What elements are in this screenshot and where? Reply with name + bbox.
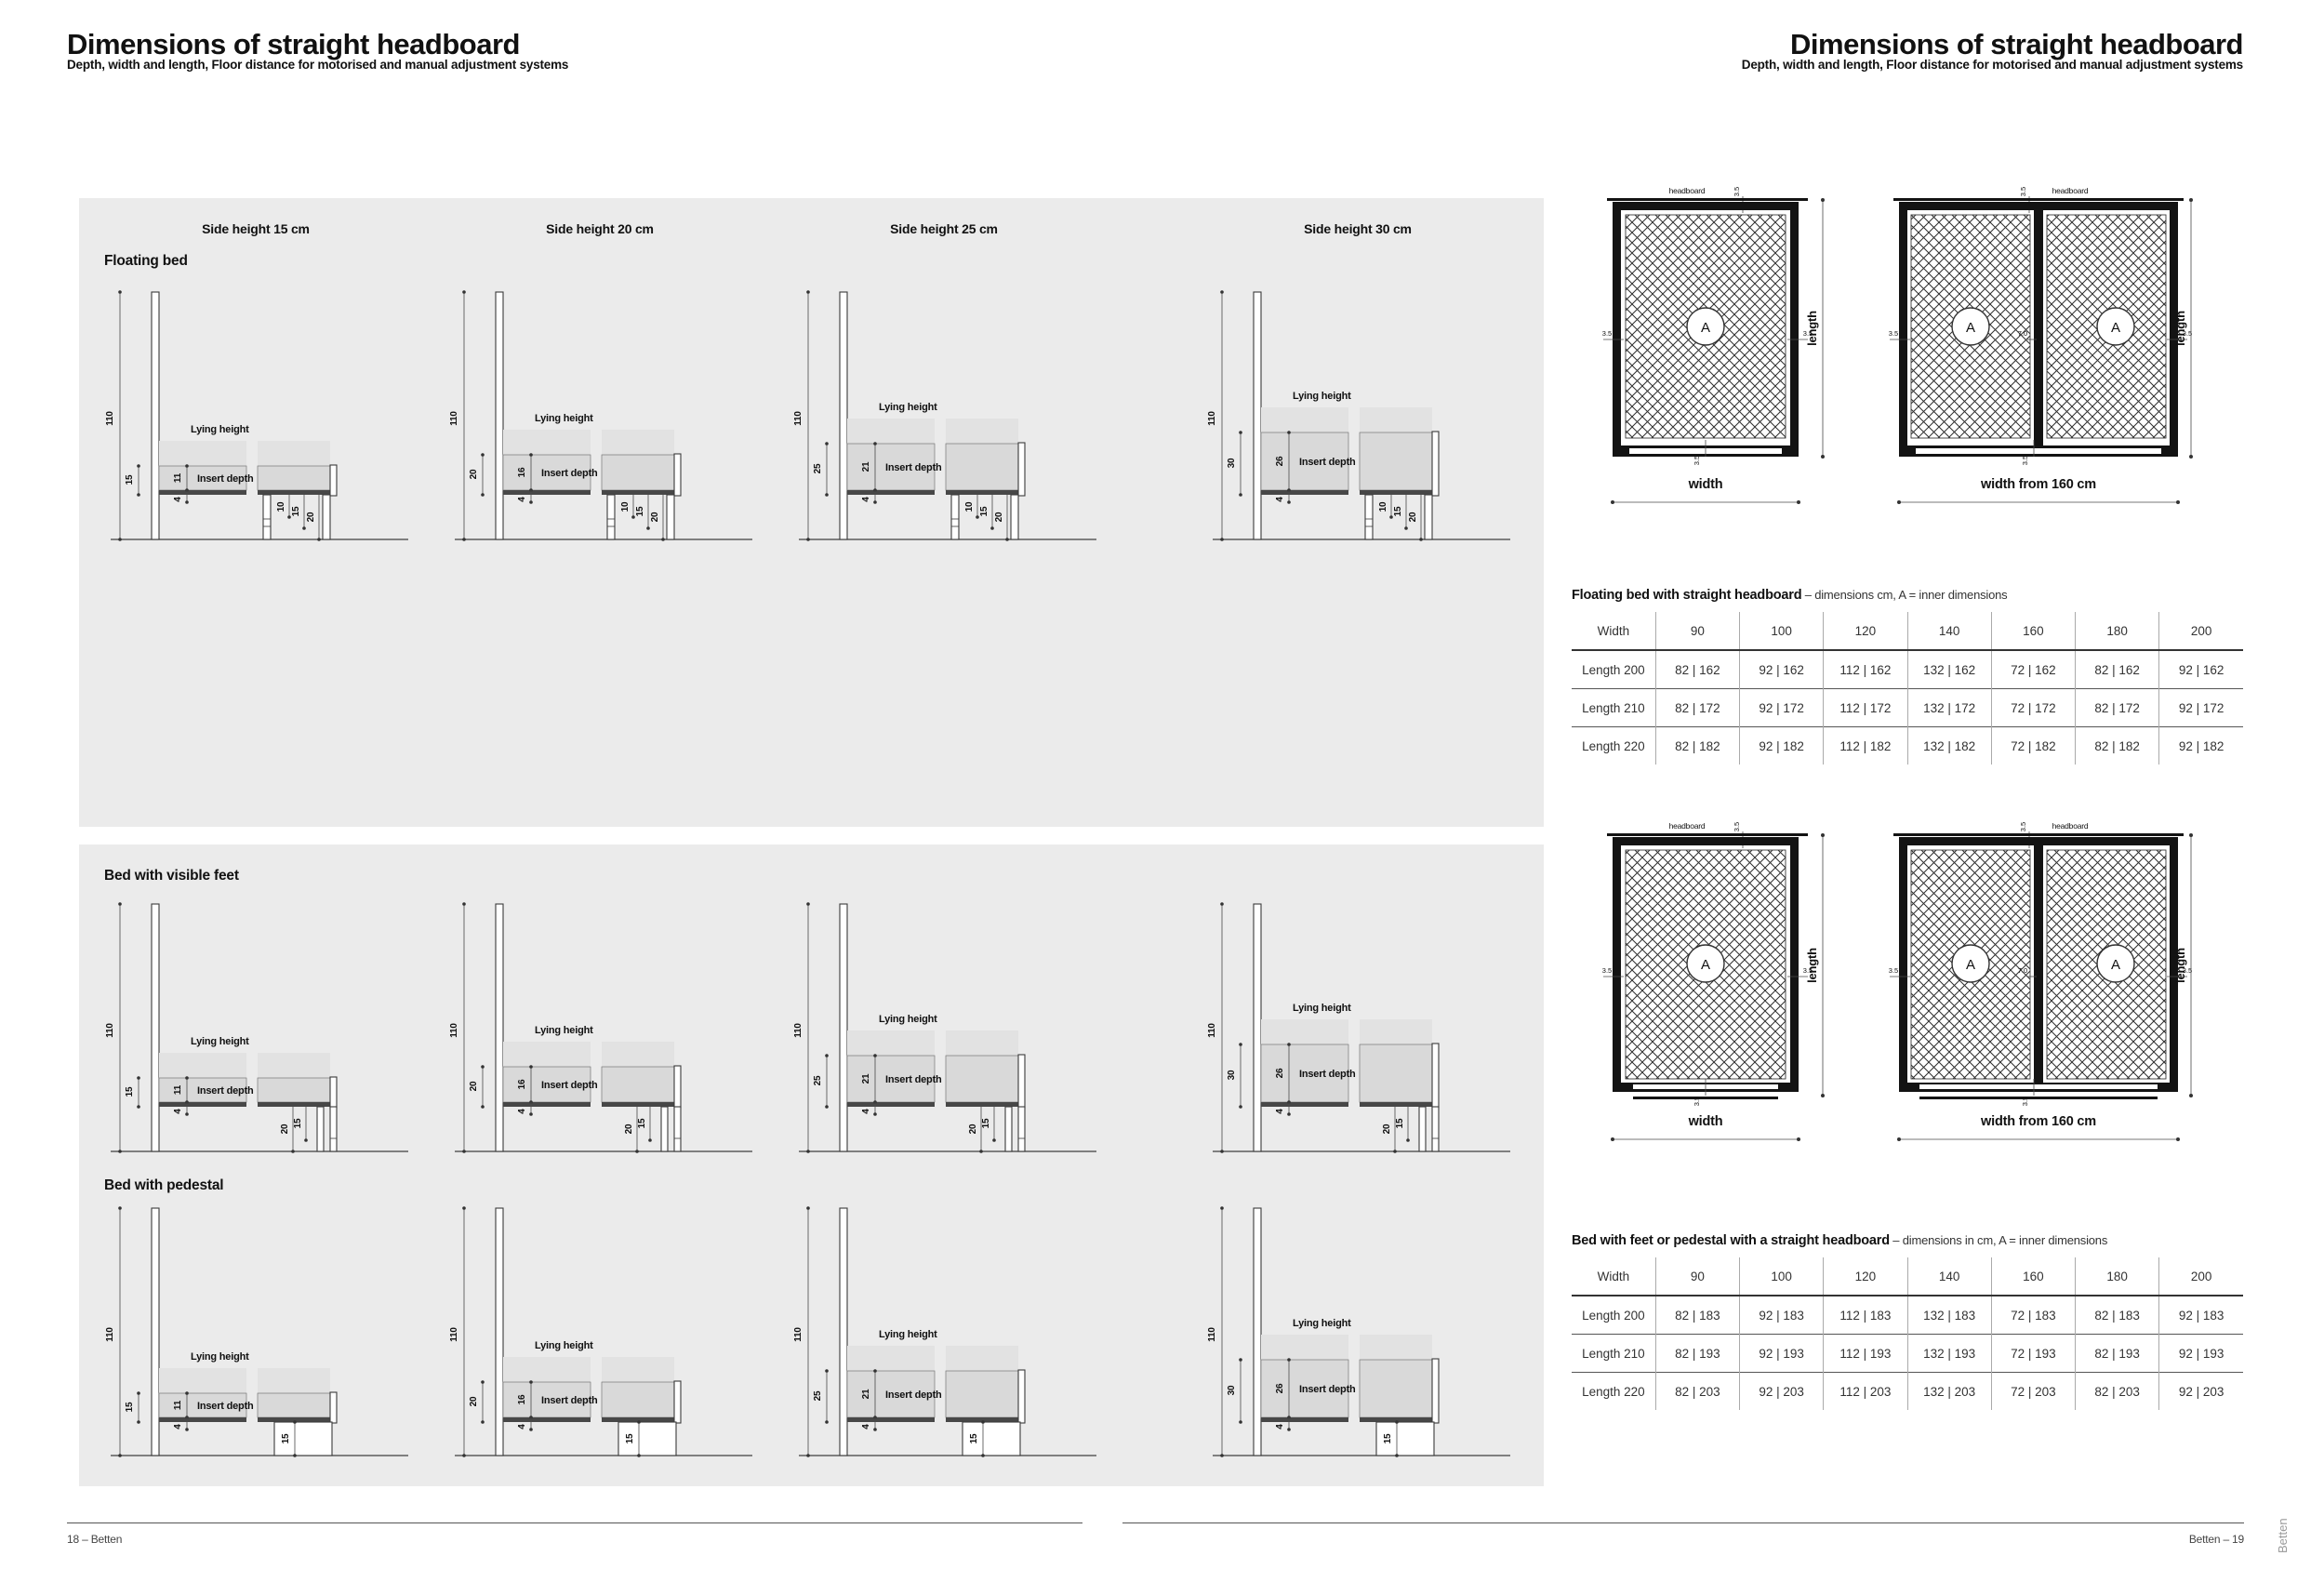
svg-text:11: 11 (173, 472, 183, 483)
table2-caption-rest: – dimensions in cm, A = inner dimensions (1890, 1233, 2107, 1247)
table-row: Length 20082 | 16292 | 162112 | 162132 |… (1572, 650, 2243, 689)
headboard-panel (840, 292, 847, 539)
table-cell: 132 | 203 (1907, 1373, 1991, 1411)
floor-dim-15: 15 (293, 1107, 308, 1142)
overall-height-dim: 110 (1207, 1206, 1224, 1457)
mattress (946, 1030, 1018, 1056)
table-header-cell: 120 (1824, 612, 1907, 650)
table-cell: 132 | 172 (1907, 689, 1991, 727)
insert-depth-label: Insert depth (197, 1085, 254, 1097)
lying-height-label: Lying height (191, 1036, 249, 1047)
headboard-panel (496, 292, 503, 539)
table-cell: 112 | 172 (1824, 689, 1907, 727)
mattress (258, 1053, 330, 1078)
diagram-feet-20: 110 20 16 4 Lying height Insert depth 20… (442, 891, 758, 1170)
headboard-edge (1607, 833, 1808, 836)
floor-dim-15: 15 (635, 495, 650, 530)
svg-text:20: 20 (469, 1396, 479, 1406)
table-row: Length 22082 | 18292 | 182112 | 182132 |… (1572, 727, 2243, 765)
topview-floating-single: headboard 3.5 A 3.5 3.5 3.5 length width (1601, 181, 1834, 516)
table-cell: Length 220 (1572, 1373, 1655, 1411)
svg-text:length: length (2173, 948, 2187, 983)
bottom-board (1261, 1417, 1348, 1422)
table-cell: 82 | 183 (1655, 1296, 1739, 1335)
table-cell: 92 | 203 (2159, 1373, 2243, 1411)
headboard-bar (1899, 837, 2178, 845)
floor-dim-15: 15 (637, 1107, 652, 1142)
floor-dim-10: 10 (1378, 495, 1393, 519)
diagram-floating-15: 110 15 11 4 Lying height Insert depth 10… (98, 279, 414, 558)
width-label: width (1688, 1114, 1723, 1129)
side-height-dim: 20 (469, 1065, 485, 1109)
table-header-cell: 200 (2159, 1257, 2243, 1296)
insert-depth-label: Insert depth (885, 1389, 942, 1401)
headboard-edge (1607, 198, 1808, 201)
length-dim: length (1805, 198, 1825, 459)
end-panel (1432, 432, 1439, 496)
mattress (1261, 1335, 1348, 1360)
svg-text:110: 110 (449, 1327, 459, 1342)
table-cell: 82 | 193 (1655, 1335, 1739, 1373)
floor-dim-20: 20 (650, 495, 665, 541)
svg-text:110: 110 (1207, 1023, 1217, 1038)
bottom-board (1261, 490, 1348, 495)
headboard-label: headboard (2052, 186, 2089, 195)
side-rail (1360, 432, 1432, 490)
table-cell: 72 | 193 (1991, 1335, 2075, 1373)
table-header-cell: 180 (2076, 612, 2159, 650)
table-header-cell: Width (1572, 1257, 1655, 1296)
svg-text:10: 10 (964, 501, 975, 512)
dimensions-table-floating: Width90100120140160180200Length 20082 | … (1572, 612, 2243, 765)
table-row: Length 21082 | 19392 | 193112 | 193132 |… (1572, 1335, 2243, 1373)
dim-70-label: 7.0 (2018, 329, 2027, 338)
svg-text:21: 21 (861, 461, 871, 472)
table-header-cell: 90 (1655, 1257, 1739, 1296)
frame-center (2034, 210, 2043, 445)
svg-text:110: 110 (793, 1327, 803, 1342)
svg-text:15: 15 (635, 506, 645, 516)
table2-caption: Bed with feet or pedestal with a straigh… (1572, 1233, 2107, 1248)
floor-dim-15: 15 (981, 1107, 996, 1142)
svg-text:10: 10 (276, 501, 286, 512)
table-cell: 112 | 182 (1824, 727, 1907, 765)
table-cell: Length 200 (1572, 650, 1655, 689)
mattress (258, 441, 330, 466)
leg (323, 495, 330, 539)
frame-left (1613, 210, 1621, 453)
svg-text:110: 110 (793, 411, 803, 426)
table-cell: 82 | 172 (2076, 689, 2159, 727)
width-dim (1611, 500, 1800, 504)
table-cell: 132 | 162 (1907, 650, 1991, 689)
mattress (847, 419, 935, 444)
overall-height-dim: 110 (1207, 902, 1224, 1153)
overall-height-dim: 110 (793, 902, 810, 1153)
table-cell: 92 | 162 (1740, 650, 1824, 689)
insert-depth-label: Insert depth (541, 1080, 598, 1091)
headboard-panel (840, 904, 847, 1151)
table-cell: 92 | 193 (2159, 1335, 2243, 1373)
side-height-dim: 25 (813, 1054, 829, 1109)
diagram-floating-20: 110 20 16 4 Lying height Insert depth 10… (442, 279, 758, 558)
inner-dim-letter: A (1701, 320, 1710, 336)
headboard-panel (1254, 292, 1261, 539)
inner-dim-letter: A (2111, 957, 2120, 973)
bottom-board (159, 490, 246, 495)
mattress (503, 1042, 591, 1067)
bottom-board (258, 1102, 330, 1107)
svg-text:4: 4 (173, 1424, 183, 1429)
svg-text:15: 15 (125, 1086, 135, 1097)
svg-text:20: 20 (968, 1124, 978, 1134)
end-panel (674, 1066, 681, 1108)
svg-text:length: length (1805, 311, 1819, 346)
lying-height-label: Lying height (535, 1340, 593, 1351)
svg-text:26: 26 (1275, 1383, 1285, 1393)
table-cell: 72 | 172 (1991, 689, 2075, 727)
mattress (503, 1357, 591, 1382)
table1-caption: Floating bed with straight headboard – d… (1572, 588, 2007, 603)
side-height-dim: 20 (469, 1380, 485, 1424)
end-panel (1432, 1359, 1439, 1423)
table-header-cell: 200 (2159, 612, 2243, 650)
table-cell: 112 | 193 (1824, 1335, 1907, 1373)
svg-text:4: 4 (1275, 497, 1285, 502)
dim-35-label: 3.5 (2021, 1097, 2029, 1106)
table-header-cell: 120 (1824, 1257, 1907, 1296)
diagram-feet-30: 110 30 26 4 Lying height Insert depth 20… (1200, 891, 1516, 1170)
diagram-feet-15: 110 15 11 4 Lying height Insert depth 20… (98, 891, 414, 1170)
overall-height-dim: 110 (793, 290, 810, 541)
table-row: Length 21082 | 17292 | 172112 | 172132 |… (1572, 689, 2243, 727)
svg-text:15: 15 (125, 1402, 135, 1412)
bottom-board (602, 1102, 674, 1107)
svg-text:20: 20 (280, 1124, 290, 1134)
table-cell: 92 | 182 (1740, 727, 1824, 765)
side-rail (946, 1371, 1018, 1417)
svg-text:length: length (2173, 311, 2187, 346)
headboard-edge (1893, 833, 2184, 836)
overall-height-dim: 110 (105, 902, 122, 1153)
table-header-cell: 90 (1655, 612, 1739, 650)
mattress (847, 1030, 935, 1056)
side-rail (1360, 1044, 1432, 1102)
headboard-panel (496, 904, 503, 1151)
svg-text:15: 15 (625, 1433, 635, 1443)
table-header-row: Width90100120140160180200 (1572, 612, 2243, 650)
table-cell: 82 | 203 (2076, 1373, 2159, 1411)
svg-text:15: 15 (981, 1118, 991, 1128)
inner-dim-letter: A (2111, 320, 2120, 336)
end-panel (330, 1077, 337, 1108)
svg-text:30: 30 (1227, 1385, 1237, 1395)
svg-text:110: 110 (105, 411, 115, 426)
svg-text:20: 20 (650, 512, 660, 522)
table-cell: 72 | 182 (1991, 727, 2075, 765)
diagram-pedestal-15: 110 15 11 4 Lying height Insert depth 15 (98, 1195, 414, 1474)
leg (317, 1107, 324, 1151)
dim-35-label: 3.5 (1889, 966, 1898, 975)
chapter-side-tab: Betten (2276, 1518, 2290, 1553)
headboard-panel (840, 1208, 847, 1456)
side-rail (946, 444, 1018, 490)
svg-text:110: 110 (1207, 411, 1217, 426)
lying-height-label: Lying height (1293, 1003, 1351, 1014)
bottom-board (503, 490, 591, 495)
table-cell: Length 210 (1572, 1335, 1655, 1373)
leg (1018, 1107, 1025, 1151)
bottom-board (847, 1102, 935, 1107)
dim-35-label: 3.5 (1889, 329, 1898, 338)
table-cell: 92 | 203 (1740, 1373, 1824, 1411)
dim-35-label: 3.5 (1693, 1097, 1701, 1106)
table-cell: 92 | 162 (2159, 650, 2243, 689)
mattress (258, 1368, 330, 1393)
svg-text:length: length (1805, 948, 1819, 983)
svg-text:25: 25 (813, 1390, 823, 1401)
floor-dim-10: 10 (620, 495, 635, 519)
leg (1432, 1107, 1439, 1151)
inner-dim-letter: A (1701, 957, 1710, 973)
frame-left (1899, 845, 1907, 1092)
table-cell: 72 | 203 (1991, 1373, 2075, 1411)
svg-text:15: 15 (979, 506, 989, 516)
bottom-board (1261, 1102, 1348, 1107)
svg-text:15: 15 (125, 474, 135, 485)
svg-text:15: 15 (293, 1118, 303, 1128)
section-label-feet: Bed with visible feet (104, 868, 239, 884)
dim-35-label: 3.5 (1602, 329, 1612, 338)
leg (1011, 495, 1018, 539)
leg (951, 495, 959, 539)
mattress (1261, 407, 1348, 432)
svg-text:15: 15 (1395, 1118, 1405, 1128)
bottom-board (159, 1102, 246, 1107)
mattress (1360, 1019, 1432, 1044)
footer-rule-left (67, 1522, 1082, 1523)
svg-text:26: 26 (1275, 1068, 1285, 1078)
section-label-floating: Floating bed (104, 253, 188, 270)
end-panel (1018, 1055, 1025, 1108)
table-cell: 92 | 182 (2159, 727, 2243, 765)
svg-text:21: 21 (861, 1073, 871, 1084)
bottom-board (159, 1417, 246, 1422)
frame-center (2034, 845, 2043, 1084)
table-cell: 82 | 183 (2076, 1296, 2159, 1335)
svg-text:15: 15 (1383, 1433, 1393, 1443)
dim-35-label: 3.5 (2021, 456, 2029, 465)
table-cell: 82 | 203 (1655, 1373, 1739, 1411)
leg (661, 1107, 668, 1151)
svg-text:21: 21 (861, 1389, 871, 1399)
table-cell: 72 | 162 (1991, 650, 2075, 689)
svg-text:20: 20 (624, 1124, 634, 1134)
table-cell: Length 200 (1572, 1296, 1655, 1335)
floor-dim-20: 20 (624, 1107, 639, 1153)
svg-text:110: 110 (105, 1327, 115, 1342)
pedestal-edge (1919, 1097, 2158, 1099)
dim-35-label: 3.5 (2019, 822, 2027, 831)
svg-text:15: 15 (1393, 506, 1403, 516)
frame-left (1899, 210, 1907, 453)
table-header-cell: Width (1572, 612, 1655, 650)
svg-text:4: 4 (861, 1424, 871, 1429)
dim-70-label: 7.0 (2018, 966, 2027, 975)
width-dim (1897, 500, 2180, 504)
footboard-bench (1916, 448, 2161, 454)
side-rail (258, 1393, 330, 1417)
table-cell: 132 | 193 (1907, 1335, 1991, 1373)
side-height-dim: 20 (469, 453, 485, 497)
side-height-dim: 15 (125, 1391, 140, 1424)
end-panel (1432, 1044, 1439, 1108)
width-label: width (1688, 477, 1723, 492)
leg (1425, 495, 1432, 539)
floor-dim-20: 20 (1408, 495, 1423, 541)
mattress (602, 430, 674, 455)
width160-label: width from 160 cm (1980, 1114, 2096, 1129)
svg-text:10: 10 (620, 501, 631, 512)
mattress (602, 1357, 674, 1382)
svg-text:20: 20 (469, 469, 479, 479)
side-rail (1360, 1360, 1432, 1417)
insert-depth-label: Insert depth (197, 1401, 254, 1412)
diagram-feet-25: 110 25 21 4 Lying height Insert depth 20… (786, 891, 1102, 1170)
table-cell: 82 | 193 (2076, 1335, 2159, 1373)
headboard-label: headboard (2052, 821, 2089, 831)
table-cell: 82 | 172 (1655, 689, 1739, 727)
table1-caption-bold: Floating bed with straight headboard (1572, 588, 1801, 603)
headboard-label: headboard (1669, 821, 1706, 831)
dim-35-label: 3.5 (1733, 187, 1741, 196)
side-height-dim: 25 (813, 442, 829, 497)
mattress (159, 1368, 246, 1393)
side-height-dim: 15 (125, 464, 140, 497)
mattress (1360, 1335, 1432, 1360)
end-panel (1018, 443, 1025, 496)
overall-height-dim: 110 (449, 902, 466, 1153)
leg (674, 1107, 681, 1151)
mattress (602, 1042, 674, 1067)
table2-caption-bold: Bed with feet or pedestal with a straigh… (1572, 1233, 1890, 1248)
lying-height-label: Lying height (1293, 391, 1351, 402)
insert-depth-label: Insert depth (885, 462, 942, 473)
table-cell: 132 | 182 (1907, 727, 1991, 765)
svg-text:4: 4 (517, 497, 527, 502)
leg (1005, 1107, 1012, 1151)
headboard-panel (152, 904, 159, 1151)
mattress (946, 419, 1018, 444)
width-dim (1611, 1137, 1800, 1141)
floor-dim-15: 15 (1393, 495, 1408, 530)
table-cell: 82 | 182 (2076, 727, 2159, 765)
table-cell: 132 | 183 (1907, 1296, 1991, 1335)
svg-text:4: 4 (1275, 1424, 1285, 1429)
mattress (1261, 1019, 1348, 1044)
leg (330, 1107, 337, 1151)
mattress (159, 1053, 246, 1078)
lying-height-label: Lying height (879, 1329, 937, 1340)
table-cell: 92 | 183 (2159, 1296, 2243, 1335)
table-header-row: Width90100120140160180200 (1572, 1257, 2243, 1296)
floor-dim-15: 15 (1395, 1107, 1410, 1142)
insert-depth-label: Insert depth (541, 468, 598, 479)
overall-height-dim: 110 (449, 1206, 466, 1457)
lying-height-label: Lying height (879, 1014, 937, 1025)
table-header-cell: 100 (1740, 1257, 1824, 1296)
headboard-bar (1613, 202, 1799, 210)
frame-right (1790, 845, 1799, 1092)
side-rail (602, 455, 674, 490)
floor-dim-10: 10 (276, 495, 291, 519)
headboard-bar (1613, 837, 1799, 845)
overall-height-dim: 110 (105, 290, 122, 541)
bottom-board (847, 1417, 935, 1422)
page-subtitle-left: Depth, width and length, Floor distance … (67, 58, 568, 72)
page-number-right: Betten – 19 (2058, 1533, 2244, 1546)
svg-text:4: 4 (861, 1109, 871, 1114)
lying-height-label: Lying height (191, 424, 249, 435)
side-rail (602, 1382, 674, 1417)
side-rail (602, 1067, 674, 1102)
bottom-board (946, 490, 1018, 495)
headboard-label: headboard (1669, 186, 1706, 195)
svg-text:11: 11 (173, 1084, 183, 1095)
insert-depth-label: Insert depth (541, 1395, 598, 1406)
diagram-pedestal-20: 110 20 16 4 Lying height Insert depth 15 (442, 1195, 758, 1474)
inner-dim-letter: A (1966, 320, 1975, 336)
headboard-edge (1893, 198, 2184, 201)
table-header-cell: 140 (1907, 612, 1991, 650)
diagram-floating-30: 110 30 26 4 Lying height Insert depth 10… (1200, 279, 1516, 558)
width-dim (1897, 1137, 2180, 1141)
bottom-board (258, 490, 330, 495)
table-cell: Length 220 (1572, 727, 1655, 765)
table-cell: 82 | 162 (2076, 650, 2159, 689)
headboard-bar (1899, 202, 2178, 210)
floor-dim-20: 20 (968, 1107, 983, 1153)
svg-text:110: 110 (105, 1023, 115, 1038)
page-title-right: Dimensions of straight headboard (1499, 28, 2243, 61)
table-cell: 112 | 203 (1824, 1373, 1907, 1411)
svg-text:15: 15 (281, 1433, 291, 1443)
dim-35-label: 3.5 (1602, 966, 1612, 975)
bottom-board (847, 490, 935, 495)
insert-depth-label: Insert depth (1299, 1069, 1356, 1080)
svg-text:16: 16 (517, 1079, 527, 1089)
table-cell: 92 | 183 (1740, 1296, 1824, 1335)
overall-height-dim: 110 (1207, 290, 1224, 541)
floor-dim-10: 10 (964, 495, 979, 519)
column-header-20: Side height 20 cm (442, 221, 758, 236)
side-rail (258, 466, 330, 490)
page-subtitle-right: Depth, width and length, Floor distance … (1499, 58, 2243, 72)
side-height-dim: 25 (813, 1369, 829, 1424)
mattress (159, 441, 246, 466)
bottom-board (503, 1102, 591, 1107)
svg-text:30: 30 (1227, 458, 1237, 468)
insert-depth-label: Insert depth (885, 1074, 942, 1085)
width160-label: width from 160 cm (1980, 477, 2096, 492)
svg-text:16: 16 (517, 467, 527, 477)
mattress (847, 1346, 935, 1371)
lying-height-label: Lying height (535, 413, 593, 424)
topview-feet-single: headboard 3.5 A 3.5 3.5 3.5 length width (1601, 817, 1834, 1151)
floor-dim-15: 15 (979, 495, 994, 530)
svg-text:4: 4 (1275, 1109, 1285, 1114)
svg-text:15: 15 (969, 1433, 979, 1443)
